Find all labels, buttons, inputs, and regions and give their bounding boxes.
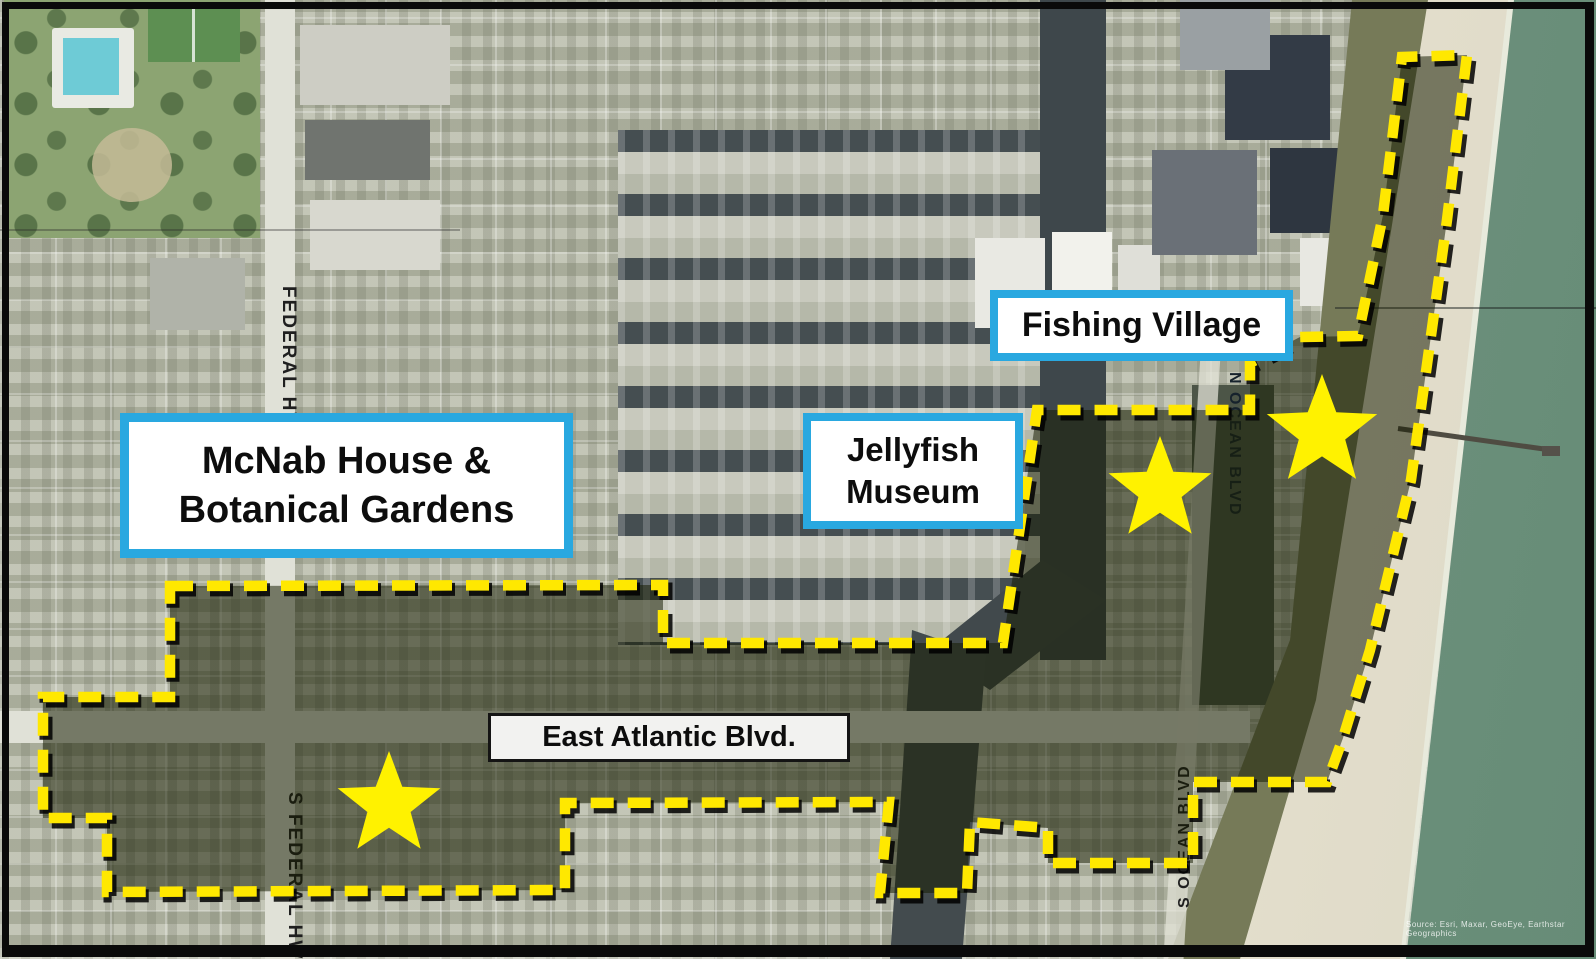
label-east-atlantic-blvd: East Atlantic Blvd. [488, 713, 850, 762]
label-line: Jellyfish [847, 429, 979, 471]
label-line: East Atlantic Blvd. [542, 719, 796, 756]
label-mcnab-house-botanical-gardens: McNab House & Botanical Gardens [120, 413, 573, 558]
label-line: Museum [846, 471, 980, 513]
label-line: Botanical Gardens [179, 486, 515, 535]
label-line: Fishing Village [1022, 304, 1261, 348]
label-line: McNab House & [202, 437, 491, 486]
label-jellyfish-museum: Jellyfish Museum [803, 413, 1023, 529]
aerial-overview-map: FEDERAL HWY S FEDERAL HWY N OCEAN BLVD S… [0, 0, 1596, 959]
map-attribution: Source: Esri, Maxar, GeoEye, Earthstar G… [1406, 920, 1596, 938]
label-fishing-village: Fishing Village [990, 290, 1293, 361]
